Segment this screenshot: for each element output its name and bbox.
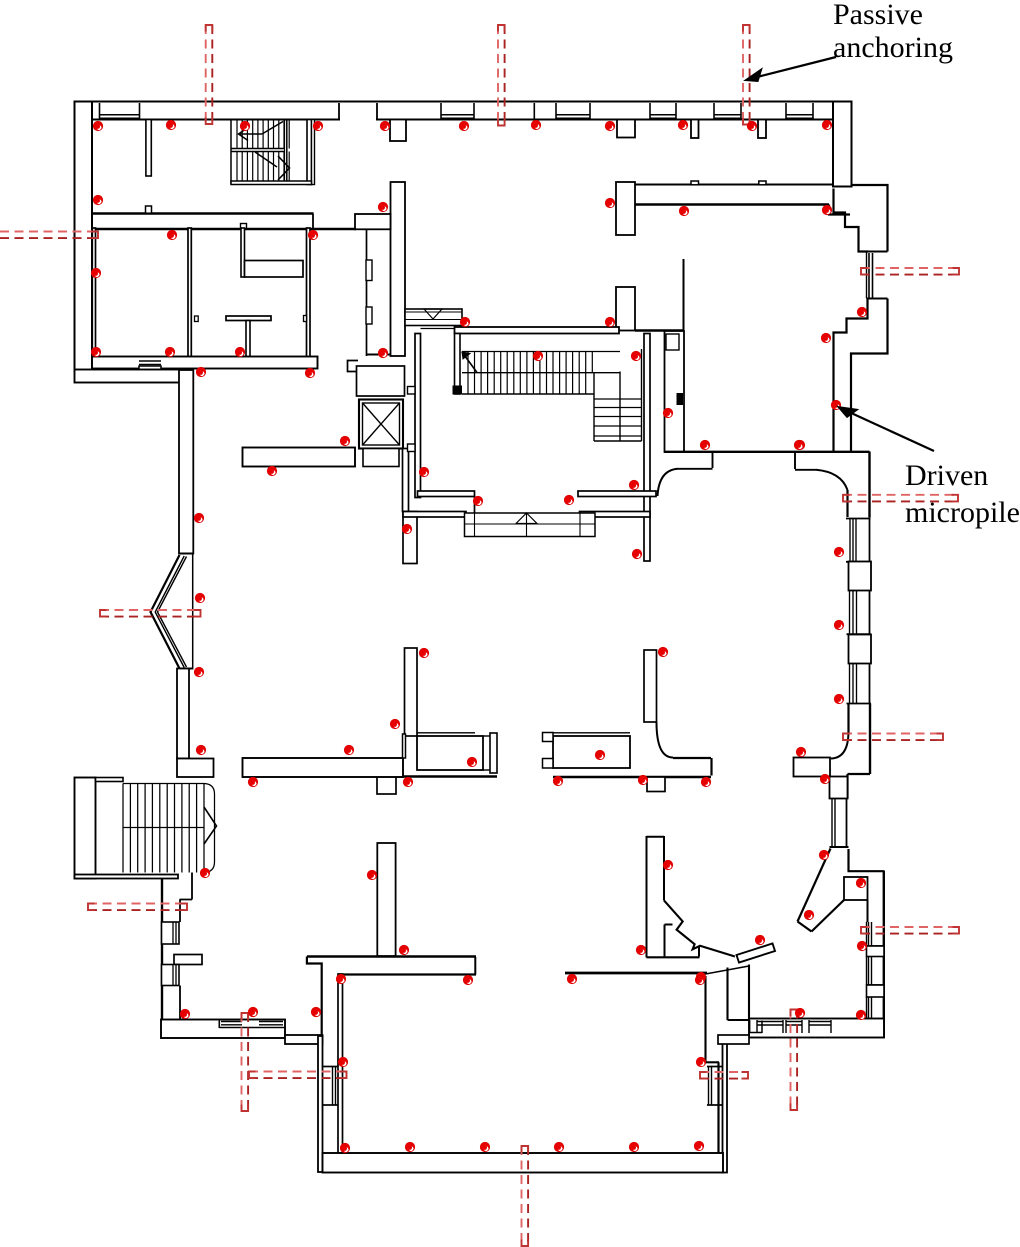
svg-text:anchoring: anchoring	[833, 31, 953, 64]
svg-text:Passive: Passive	[833, 0, 923, 31]
svg-text:micropile: micropile	[905, 496, 1020, 529]
svg-text:Driven: Driven	[905, 459, 988, 492]
